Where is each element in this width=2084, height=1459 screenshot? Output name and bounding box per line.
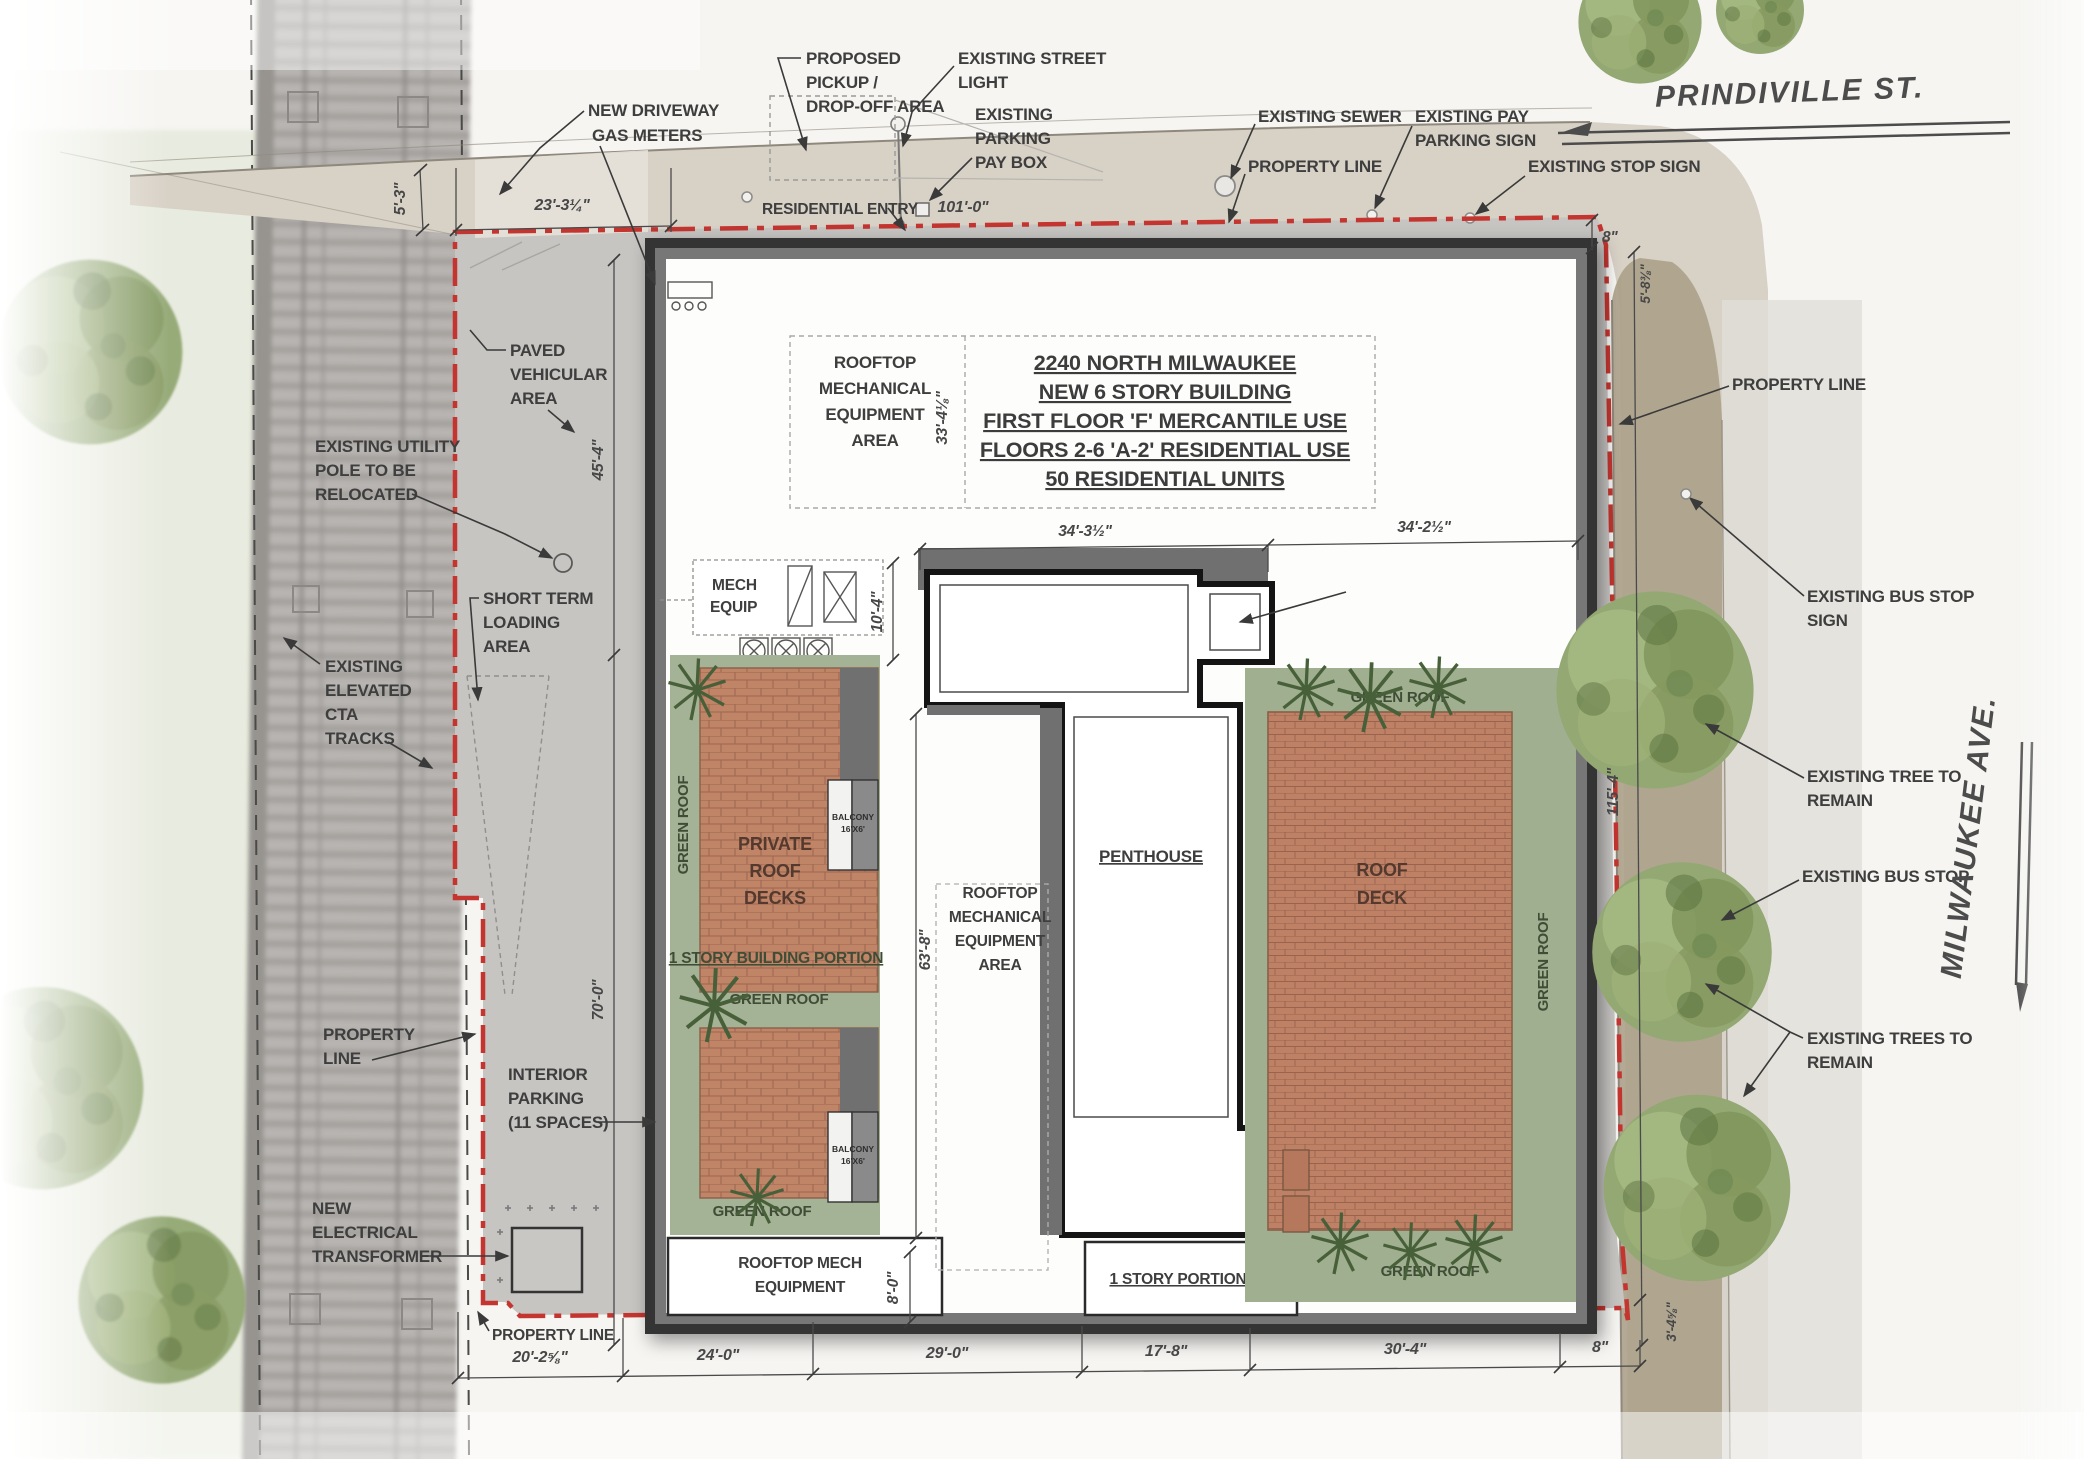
dim-33-4: 33'-4⅛"	[934, 390, 951, 444]
edge-fade-top	[0, 0, 700, 70]
balcony-lower-line1: BALCONY	[832, 1144, 874, 1154]
site-plan-svg: ROOFTOP MECHANICAL EQUIPMENT AREA 33'-4⅛…	[0, 0, 2084, 1459]
roof-deck-line1: ROOF	[1356, 860, 1407, 880]
dim-115-4: 115'-4"	[1605, 767, 1622, 816]
rooftop-mech-top-line4: AREA	[851, 431, 898, 450]
svg-text:PROPERTY LINE: PROPERTY LINE	[1732, 375, 1866, 394]
svg-text:EXISTING: EXISTING	[325, 657, 403, 676]
rooftop-mech-equipment-line2: EQUIPMENT	[755, 1279, 846, 1296]
rooftop-mech-center-line1: ROOFTOP	[963, 885, 1038, 902]
title-line2: NEW 6 STORY BUILDING	[1039, 380, 1291, 404]
dim-8in-bottom: 8"	[1592, 1339, 1609, 1356]
svg-text:EXISTING BUS STOP: EXISTING BUS STOP	[1802, 867, 1969, 886]
west-green-roof-strip: GREEN ROOF PRIVATE ROOF DECKS BALCONY 16…	[669, 655, 884, 1235]
rooftop-mech-center-line3: EQUIPMENT	[955, 933, 1046, 950]
svg-text:EXISTING TREE TO: EXISTING TREE TO	[1807, 767, 1961, 786]
svg-text:PROPERTY: PROPERTY	[323, 1025, 416, 1044]
svg-text:RESIDENTIAL ENTRY: RESIDENTIAL ENTRY	[762, 201, 919, 218]
roof-deck-line2: DECK	[1357, 888, 1407, 908]
svg-text:RELOCATED: RELOCATED	[315, 485, 418, 504]
svg-text:PARKING SIGN: PARKING SIGN	[1415, 131, 1536, 150]
dim-8-0: 8'-0"	[885, 1271, 902, 1304]
svg-text:PARKING: PARKING	[508, 1089, 584, 1108]
green-roof-label-west: GREEN ROOF	[675, 776, 692, 875]
dim-5-8: 5'-8⅜"	[1638, 264, 1653, 304]
svg-text:PROPERTY LINE: PROPERTY LINE	[492, 1327, 614, 1344]
rooftop-mech-center-line4: AREA	[978, 957, 1021, 974]
balcony-lower-line2: 16'X6'	[841, 1156, 865, 1166]
dim-23-3: 23'-3¼"	[533, 197, 590, 214]
rooftop-mech-top-line1: ROOFTOP	[834, 353, 916, 372]
site-plan-drawing: ROOFTOP MECHANICAL EQUIPMENT AREA 33'-4⅛…	[0, 0, 2084, 1459]
rooftop-mech-center-line2: MECHANICAL	[949, 909, 1051, 926]
title-line3: FIRST FLOOR 'F' MERCANTILE USE	[983, 409, 1347, 433]
svg-text:REMAIN: REMAIN	[1807, 791, 1873, 810]
svg-text:PICKUP /: PICKUP /	[806, 73, 878, 92]
dim-5-3: 5'-3"	[392, 182, 409, 215]
rooftop-mech-top-line2: MECHANICAL	[819, 379, 931, 398]
svg-text:INTERIOR: INTERIOR	[508, 1065, 588, 1084]
svg-text:PROPERTY LINE: PROPERTY LINE	[1248, 157, 1382, 176]
private-roof-decks-line1: PRIVATE	[738, 834, 812, 854]
dim-34-3: 34'-3½"	[1058, 523, 1112, 540]
svg-text:EXISTING TREES TO: EXISTING TREES TO	[1807, 1029, 1972, 1048]
penthouse-label: PENTHOUSE	[1099, 847, 1203, 866]
mech-equip-line1: MECH	[712, 577, 757, 594]
balcony-upper-line2: 16'X6'	[841, 824, 865, 834]
svg-text:EXISTING UTILITY: EXISTING UTILITY	[315, 437, 461, 456]
penthouse-west-shadow	[1040, 708, 1062, 1235]
sidewalk-marker-circle	[742, 192, 752, 202]
svg-text:POLE TO BE: POLE TO BE	[315, 461, 416, 480]
private-roof-decks-line2: ROOF	[749, 861, 800, 881]
svg-text:PROPOSED: PROPOSED	[806, 49, 901, 68]
svg-text:EXISTING STREET: EXISTING STREET	[958, 49, 1107, 68]
rooftop-mech-equipment-line1: ROOFTOP MECH	[738, 1255, 862, 1272]
svg-text:NEW DRIVEWAY: NEW DRIVEWAY	[588, 101, 720, 120]
dim-3-4: 3'-4⅝"	[1664, 1302, 1679, 1342]
balcony-lower: BALCONY 16'X6'	[828, 1112, 878, 1202]
title-line5: 50 RESIDENTIAL UNITS	[1045, 467, 1284, 491]
svg-text:PARKING: PARKING	[975, 129, 1051, 148]
mech-equip-line2: EQUIP	[710, 599, 757, 616]
svg-text:NEW: NEW	[312, 1199, 352, 1218]
svg-text:SHORT TERM: SHORT TERM	[483, 589, 593, 608]
svg-text:ELEVATED: ELEVATED	[325, 681, 412, 700]
penthouse-bar-shadow	[927, 705, 1040, 715]
sewer-manhole	[1215, 176, 1235, 196]
one-story-building-portion-label: 1 STORY BUILDING PORTION	[669, 950, 884, 967]
green-roof-label-mid: GREEN ROOF	[730, 991, 829, 1008]
east-roof-deck-zone: GREEN ROOF ROOF DECK GREEN ROOF GREEN RO…	[1245, 657, 1576, 1303]
edge-fade-right	[2014, 0, 2084, 1459]
bus-stop-sign-symbol	[1681, 489, 1691, 499]
balcony-upper: BALCONY 16'X6'	[828, 780, 878, 870]
deck-shadow-lower	[840, 1028, 878, 1118]
svg-text:AREA: AREA	[510, 389, 557, 408]
svg-text:ELECTRICAL: ELECTRICAL	[312, 1223, 418, 1242]
rooftop-mech-top-line3: EQUIPMENT	[825, 405, 925, 424]
dim-29-0: 29'-0"	[925, 1345, 969, 1362]
dim-30-4: 30'-4"	[1384, 1341, 1427, 1358]
parking-pay-box-symbol	[916, 203, 929, 216]
svg-text:LINE: LINE	[323, 1049, 361, 1068]
svg-text:VEHICULAR: VEHICULAR	[510, 365, 607, 384]
mech-area-height-dim: 33'-4⅛"	[934, 390, 951, 444]
dim-8in-top: 8"	[1602, 229, 1618, 246]
dim-101-0: 101'-0"	[938, 199, 990, 216]
svg-text:PAY BOX: PAY BOX	[975, 153, 1048, 172]
svg-text:(11 SPACES): (11 SPACES)	[508, 1113, 608, 1132]
green-roof-label-east-side: GREEN ROOF	[1535, 913, 1552, 1012]
dim-17-8: 17'-8"	[1145, 1343, 1188, 1360]
svg-text:PAVED: PAVED	[510, 341, 565, 360]
svg-text:REMAIN: REMAIN	[1807, 1053, 1873, 1072]
svg-text:SIGN: SIGN	[1807, 611, 1848, 630]
svg-text:EXISTING STOP SIGN: EXISTING STOP SIGN	[1528, 157, 1700, 176]
dim-24-0: 24'-0"	[696, 1347, 740, 1364]
dim-70-0: 70'-0"	[590, 979, 607, 1021]
svg-text:AREA: AREA	[483, 637, 530, 656]
svg-text:CTA: CTA	[325, 705, 358, 724]
svg-text:EXISTING PAY: EXISTING PAY	[1415, 107, 1530, 126]
svg-text:LIGHT: LIGHT	[958, 73, 1009, 92]
svg-text:TRACKS: TRACKS	[325, 729, 395, 748]
edge-fade-left	[0, 0, 170, 1459]
title-line4: FLOORS 2-6 'A-2' RESIDENTIAL USE	[980, 438, 1350, 462]
svg-text:EXISTING BUS STOP: EXISTING BUS STOP	[1807, 587, 1974, 606]
dim-34-2: 34'-2½"	[1397, 519, 1451, 536]
balcony-upper-line1: BALCONY	[832, 812, 874, 822]
svg-text:EXISTING: EXISTING	[975, 105, 1053, 124]
dim-10-4: 10'-4"	[869, 591, 886, 633]
dim-20-2: 20'-2⅝"	[511, 1349, 568, 1366]
svg-text:LOADING: LOADING	[483, 613, 560, 632]
svg-text:EXISTING SEWER: EXISTING SEWER	[1258, 107, 1402, 126]
title-line1: 2240 NORTH MILWAUKEE	[1034, 351, 1296, 375]
deck-shadow-upper	[840, 668, 878, 780]
svg-text:GAS METERS: GAS METERS	[592, 126, 702, 145]
one-story-portion-label: 1 STORY PORTION	[1109, 1271, 1246, 1288]
private-roof-decks-line3: DECKS	[744, 888, 806, 908]
dim-45-4: 45'-4"	[590, 439, 607, 482]
edge-fade-bottom	[0, 1412, 2084, 1459]
dim-63-8: 63'-8"	[917, 929, 934, 971]
